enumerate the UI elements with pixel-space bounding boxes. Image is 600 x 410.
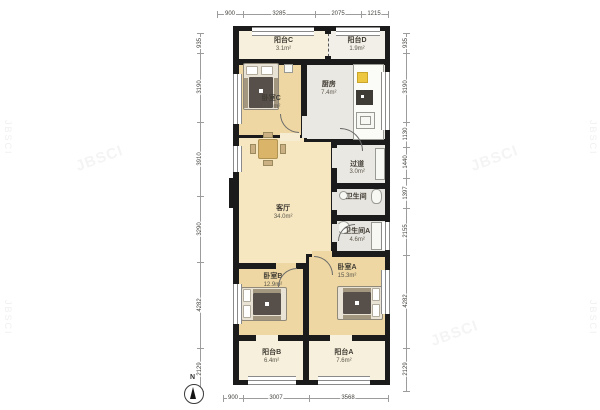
sink-basin xyxy=(360,116,371,125)
door-opening xyxy=(330,335,352,342)
window xyxy=(252,27,314,36)
watermark: JBSCI xyxy=(3,300,13,336)
blanket-logo xyxy=(355,301,359,305)
window xyxy=(233,74,242,124)
watermark: JBSCI xyxy=(429,317,481,350)
dim-label-top-3: 1215 xyxy=(366,11,381,17)
compass-needle-icon xyxy=(190,387,196,399)
chair xyxy=(263,132,273,138)
dim-label-top-1: 3285 xyxy=(271,11,286,17)
window xyxy=(233,146,242,172)
door-opening xyxy=(332,192,339,210)
window xyxy=(336,27,380,36)
pillow xyxy=(261,66,273,75)
watermark: JBSCI xyxy=(588,120,598,156)
window xyxy=(248,376,296,385)
dim-label-left-1: 3190 xyxy=(197,79,203,94)
door-opening xyxy=(302,116,309,138)
blanket-logo xyxy=(265,302,269,306)
room-area-hallway: 3.0m² xyxy=(349,169,364,176)
nightstand xyxy=(284,64,293,73)
chair xyxy=(280,144,286,154)
dim-label-right-3: 1440 xyxy=(403,154,409,169)
stove-burner xyxy=(361,95,364,98)
watermark: JBSCI xyxy=(588,300,598,336)
window xyxy=(381,222,390,250)
pillow xyxy=(372,288,380,301)
room-area-kitchen: 7.4m² xyxy=(321,90,336,97)
floor-plan-canvas: JBSCI JBSCI JBSCI JBSCI JBSCI JBSCI JBSC… xyxy=(0,0,600,410)
room-label-balcony-d: 阳台D xyxy=(347,37,366,46)
dim-label-right-4: 1397 xyxy=(403,185,409,200)
dim-label-bottom-2: 3568 xyxy=(340,395,355,401)
chair xyxy=(250,144,256,154)
dim-label-right-0: 935 xyxy=(403,37,409,49)
toilet xyxy=(371,189,382,204)
dim-label-bottom-0: 900 xyxy=(227,395,239,401)
room-label-kitchen: 厨房 xyxy=(321,81,336,90)
window xyxy=(233,284,242,324)
cabinet xyxy=(375,148,385,180)
dimension-line-bottom xyxy=(223,398,388,399)
room-area-balcony-d: 1.9m² xyxy=(347,46,366,53)
stove xyxy=(356,90,373,105)
pillow xyxy=(372,304,380,317)
bed-cover xyxy=(253,316,281,320)
watermark: JBSCI xyxy=(74,142,126,175)
room-label-bedroom-c: 卧室C xyxy=(262,95,281,104)
room-area-living: 34.0m² xyxy=(274,214,293,221)
door-opening xyxy=(256,335,278,342)
kitchen-appliance xyxy=(357,72,368,83)
wall-step xyxy=(229,178,237,208)
pillow xyxy=(246,66,258,75)
room-label-balcony-a: 阳台A xyxy=(334,349,353,358)
dim-label-right-7: 2129 xyxy=(403,361,409,376)
room-label-balcony-c: 阳台C xyxy=(274,37,293,46)
room-area-bedroom-a: 15.3m² xyxy=(337,273,356,280)
room-label-living: 客厅 xyxy=(274,205,293,214)
dim-label-bottom-1: 3007 xyxy=(268,395,283,401)
dim-label-left-3: 3290 xyxy=(197,221,203,236)
bed-cover xyxy=(343,315,371,319)
dim-label-left-0: 935 xyxy=(197,37,203,49)
room-area-bedroom-c: 11.7m² xyxy=(262,104,281,111)
room-area-balcony-a: 7.6m² xyxy=(334,358,353,365)
compass-north-label: N xyxy=(190,374,195,381)
dim-label-left-2: 3910 xyxy=(197,151,203,166)
dim-label-top-2: 2075 xyxy=(330,11,345,17)
blanket-logo xyxy=(259,89,263,93)
pillow xyxy=(243,289,251,302)
window xyxy=(318,376,370,385)
wall-post xyxy=(325,28,331,34)
door-opening xyxy=(280,133,300,141)
watermark: JBSCI xyxy=(3,120,13,156)
window xyxy=(381,72,390,130)
room-label-hallway: 过道 xyxy=(349,161,364,170)
dim-label-right-5: 2155 xyxy=(403,223,409,238)
room-label-balcony-b: 阳台B xyxy=(262,349,281,358)
window xyxy=(381,270,390,314)
dim-label-left-4: 4282 xyxy=(197,297,203,312)
dim-label-right-2: 1130 xyxy=(403,127,409,142)
dim-label-right-1: 3190 xyxy=(403,79,409,94)
wall-post xyxy=(325,56,331,62)
dining-table xyxy=(258,139,278,159)
room-area-balcony-b: 6.4m² xyxy=(262,358,281,365)
room-area-balcony-c: 3.1m² xyxy=(274,46,293,53)
dim-label-left-5: 2129 xyxy=(197,361,203,376)
room-label-bathroom: 卫生间 xyxy=(346,194,367,203)
chair xyxy=(263,160,273,166)
bed-cover xyxy=(244,78,248,108)
watermark: JBSCI xyxy=(469,142,521,175)
pillow xyxy=(243,305,251,318)
dim-label-right-6: 4282 xyxy=(403,293,409,308)
room-label-bedroom-a: 卧室A xyxy=(337,264,356,273)
door-opening xyxy=(332,148,339,168)
dim-label-top-0: 900 xyxy=(224,11,236,17)
